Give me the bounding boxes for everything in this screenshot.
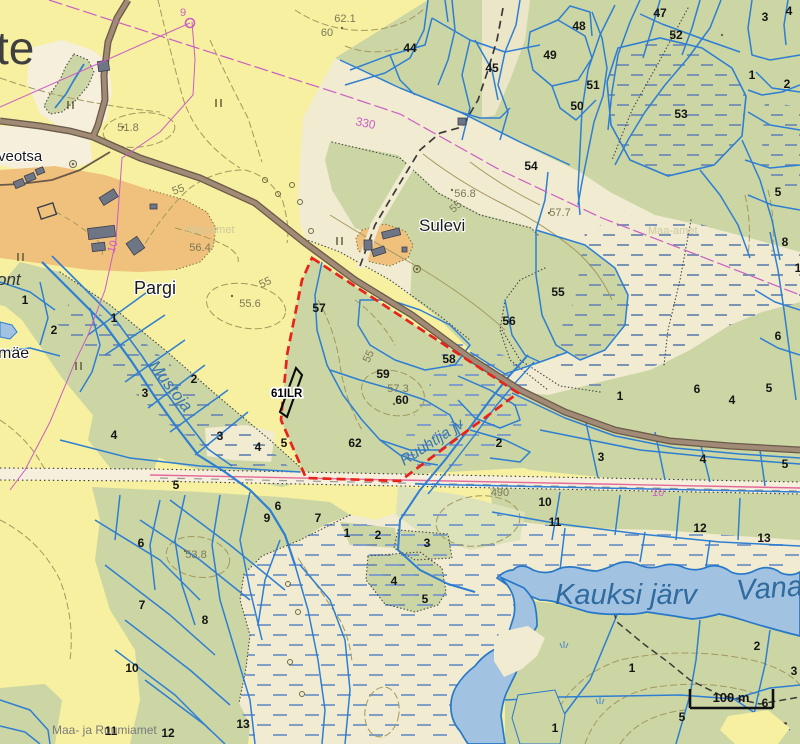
svg-text:47: 47 <box>653 6 667 20</box>
svg-text:3: 3 <box>142 386 149 400</box>
svg-text:3: 3 <box>791 664 798 678</box>
svg-text:62: 62 <box>348 436 362 450</box>
svg-text:1: 1 <box>344 526 351 540</box>
svg-text:12: 12 <box>161 726 175 740</box>
svg-text:54: 54 <box>524 159 538 173</box>
svg-text:53: 53 <box>674 107 688 121</box>
svg-text:5: 5 <box>679 710 686 724</box>
svg-text:ont: ont <box>0 270 22 289</box>
svg-text:2: 2 <box>784 77 791 91</box>
svg-text:12: 12 <box>693 521 707 535</box>
svg-text:55.6: 55.6 <box>239 298 260 310</box>
svg-text:6: 6 <box>275 499 282 513</box>
svg-text:6: 6 <box>775 329 782 343</box>
svg-text:49: 49 <box>543 48 557 62</box>
svg-text:4: 4 <box>786 4 793 18</box>
svg-text:45: 45 <box>485 61 499 75</box>
svg-text:5: 5 <box>766 381 773 395</box>
svg-text:1: 1 <box>749 68 756 82</box>
svg-text:50: 50 <box>570 99 584 113</box>
svg-text:62.1: 62.1 <box>334 13 355 25</box>
svg-text:100 m: 100 m <box>713 690 750 705</box>
svg-text:61ILR: 61ILR <box>271 388 303 400</box>
svg-text:52: 52 <box>669 28 683 42</box>
svg-text:2: 2 <box>375 528 382 542</box>
svg-text:2: 2 <box>754 639 761 653</box>
svg-text:5: 5 <box>782 457 789 471</box>
svg-text:44: 44 <box>403 41 417 55</box>
svg-text:Kauksi järv: Kauksi järv <box>555 579 698 611</box>
svg-text:te: te <box>0 22 34 74</box>
svg-text:1: 1 <box>552 721 559 735</box>
svg-text:8: 8 <box>782 235 789 249</box>
svg-text:veotsa: veotsa <box>0 148 43 165</box>
svg-text:3: 3 <box>598 450 605 464</box>
svg-text:57: 57 <box>312 301 326 315</box>
svg-text:56.8: 56.8 <box>454 188 475 200</box>
svg-text:Vana: Vana <box>735 570 800 607</box>
svg-text:56.4: 56.4 <box>189 242 210 254</box>
svg-text:60: 60 <box>395 393 409 407</box>
svg-text:53.8: 53.8 <box>185 549 206 561</box>
svg-text:9: 9 <box>264 511 271 525</box>
svg-text:8: 8 <box>202 613 209 627</box>
svg-text:11: 11 <box>549 515 562 529</box>
svg-text:55: 55 <box>551 285 565 299</box>
svg-text:490: 490 <box>491 487 509 499</box>
svg-text:48: 48 <box>572 19 586 33</box>
svg-text:10: 10 <box>538 495 552 509</box>
svg-text:4: 4 <box>700 452 707 466</box>
svg-text:Maa-amet: Maa-amet <box>185 224 235 236</box>
svg-text:Maa-amet: Maa-amet <box>648 225 698 237</box>
svg-text:56: 56 <box>502 314 516 328</box>
svg-text:4: 4 <box>111 428 118 442</box>
svg-text:57.7: 57.7 <box>549 207 570 219</box>
svg-text:13: 13 <box>236 717 250 731</box>
svg-text:3: 3 <box>217 429 224 443</box>
svg-text:10: 10 <box>125 661 139 675</box>
svg-text:1: 1 <box>111 311 118 325</box>
svg-text:57.3: 57.3 <box>387 383 408 395</box>
svg-text:Sulevi: Sulevi <box>419 216 465 235</box>
svg-text:7: 7 <box>139 598 146 612</box>
svg-text:Maa- ja Ruumiamet: Maa- ja Ruumiamet <box>52 723 157 737</box>
svg-text:60: 60 <box>321 27 333 39</box>
svg-text:5: 5 <box>422 592 429 606</box>
svg-text:Pargi: Pargi <box>134 278 176 298</box>
svg-text:4: 4 <box>729 393 736 407</box>
svg-text:1: 1 <box>629 661 636 675</box>
svg-text:9: 9 <box>180 7 186 19</box>
svg-text:3: 3 <box>424 536 431 550</box>
svg-text:59: 59 <box>376 367 390 381</box>
svg-text:2: 2 <box>191 372 198 386</box>
svg-text:2: 2 <box>51 323 58 337</box>
svg-text:3: 3 <box>762 10 769 24</box>
svg-text:51.8: 51.8 <box>117 122 138 134</box>
svg-text:51: 51 <box>586 78 600 92</box>
svg-text:4: 4 <box>391 574 398 588</box>
svg-text:4: 4 <box>255 440 262 454</box>
svg-text:5: 5 <box>281 436 288 450</box>
svg-text:5: 5 <box>775 185 782 199</box>
svg-text:2: 2 <box>496 436 503 450</box>
svg-text:mäe: mäe <box>0 345 29 362</box>
svg-text:6: 6 <box>694 382 701 396</box>
svg-text:1: 1 <box>22 293 29 307</box>
svg-text:1: 1 <box>617 389 624 403</box>
svg-text:6: 6 <box>138 536 145 550</box>
svg-text:13: 13 <box>757 531 771 545</box>
svg-text:5: 5 <box>173 478 180 492</box>
svg-text:7: 7 <box>315 511 322 525</box>
svg-text:10: 10 <box>652 487 664 499</box>
svg-text:58: 58 <box>442 352 456 366</box>
svg-text:1: 1 <box>795 261 800 275</box>
